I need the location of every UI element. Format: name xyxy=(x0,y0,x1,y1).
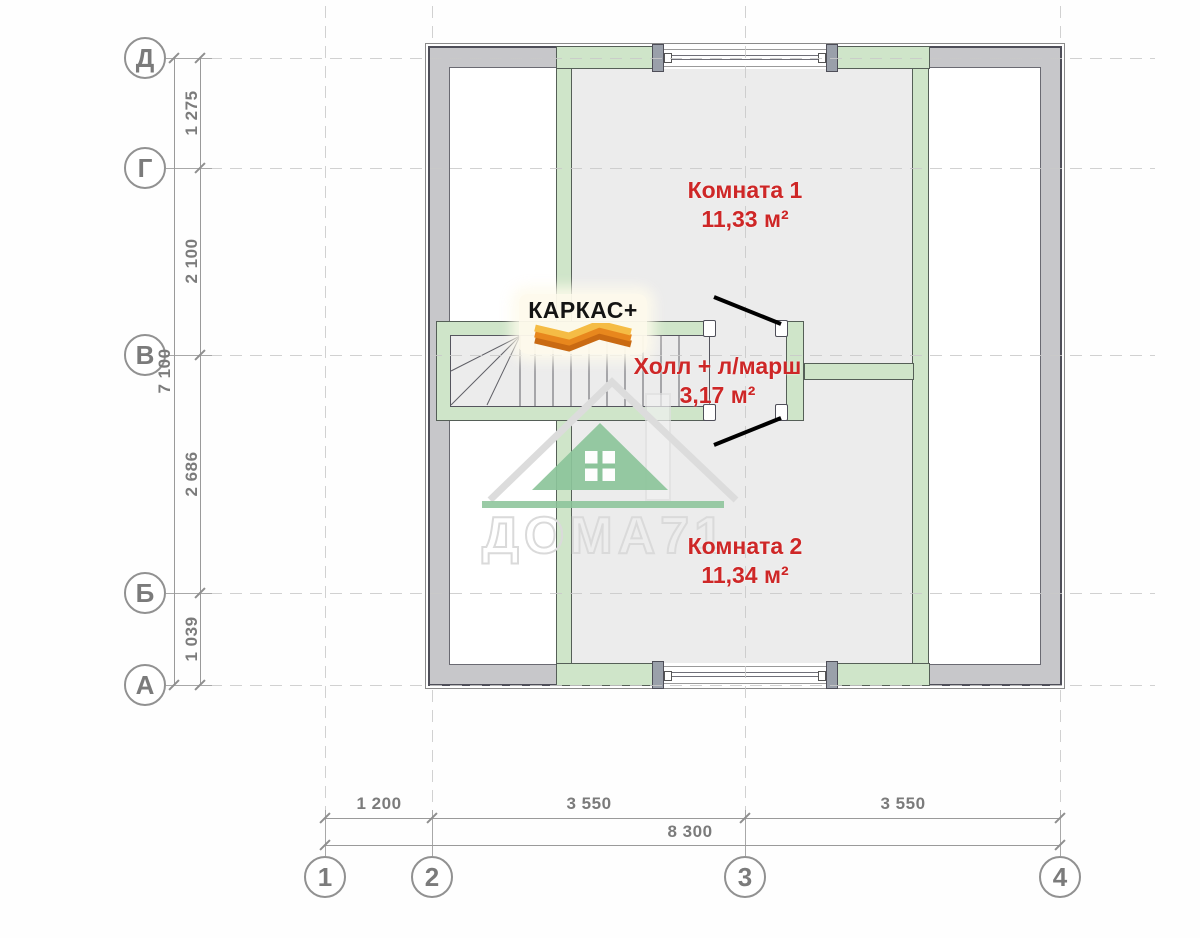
axis-marker-row-a: А xyxy=(124,664,166,706)
axis-label: 1 xyxy=(318,862,332,893)
axis-label: 3 xyxy=(738,862,752,893)
room2-label: Комната 2 11,34 м² xyxy=(620,532,870,590)
room2-name: Комната 2 xyxy=(620,532,870,561)
dimension-label-total: 8 300 xyxy=(667,822,712,842)
axis-marker-row-g: Г xyxy=(124,147,166,189)
axis-extension-line xyxy=(166,593,212,594)
axis-label: В xyxy=(136,340,155,371)
axis-label: 4 xyxy=(1053,862,1067,893)
axis-marker-col-2: 2 xyxy=(411,856,453,898)
room1-area: 11,33 м² xyxy=(620,205,870,234)
dimension-label: 3 550 xyxy=(566,794,611,814)
axis-marker-col-4: 4 xyxy=(1039,856,1081,898)
hall-area: 3,17 м² xyxy=(600,381,835,410)
axis-label: Д xyxy=(136,43,155,74)
dimension-label: 3 550 xyxy=(880,794,925,814)
dimension-line-bottom-total xyxy=(325,845,1060,846)
room1-label: Комната 1 11,33 м² xyxy=(620,176,870,234)
dimension-label-total: 7 100 xyxy=(155,348,175,393)
dimension-label: 1 039 xyxy=(182,616,202,661)
door-leaf-bottom xyxy=(714,418,781,445)
axis-label: Г xyxy=(138,153,153,184)
room2-area: 11,34 м² xyxy=(620,561,870,590)
axis-marker-row-d: Д xyxy=(124,37,166,79)
dimension-label: 1 200 xyxy=(356,794,401,814)
axis-marker-col-3: 3 xyxy=(724,856,766,898)
axis-label: 2 xyxy=(425,862,439,893)
room1-name: Комната 1 xyxy=(620,176,870,205)
door-leaf-top xyxy=(714,297,781,324)
hall-label: Холл + л/марш 3,17 м² xyxy=(600,352,835,410)
axis-label: А xyxy=(136,670,155,701)
dimension-label: 2 686 xyxy=(182,451,202,496)
hall-name: Холл + л/марш xyxy=(600,352,835,381)
axis-extension-line xyxy=(166,168,212,169)
floor-plan-canvas: ДОМА71 КАРКАС+ Комната 1 11,33 м² Холл +… xyxy=(0,0,1200,938)
axis-marker-row-b: Б xyxy=(124,572,166,614)
dimension-line-bottom-segments xyxy=(325,818,1060,819)
dimension-label: 2 100 xyxy=(182,238,202,283)
dimension-label: 1 275 xyxy=(182,90,202,135)
axis-marker-col-1: 1 xyxy=(304,856,346,898)
axis-label: Б xyxy=(136,578,155,609)
